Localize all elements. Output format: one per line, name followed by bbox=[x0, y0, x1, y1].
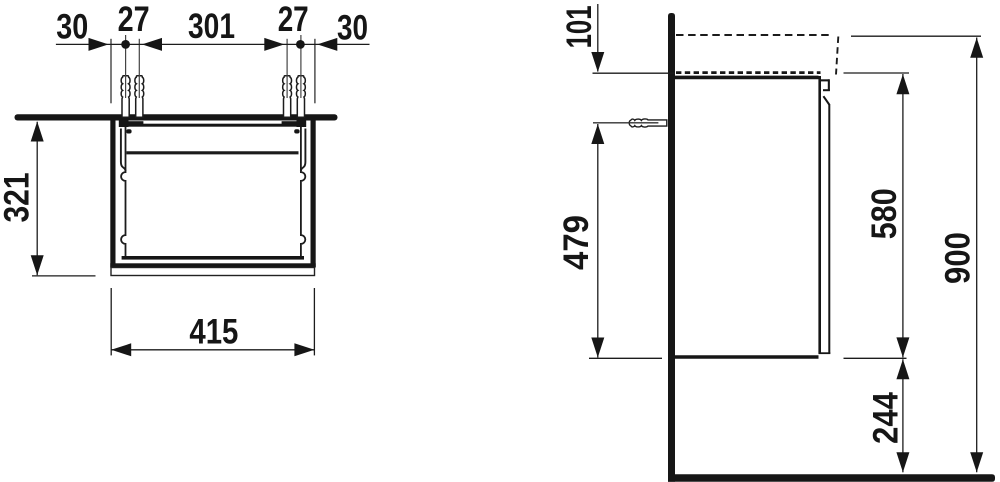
svg-text:27: 27 bbox=[118, 0, 150, 39]
svg-text:415: 415 bbox=[189, 313, 238, 352]
svg-text:900: 900 bbox=[939, 232, 978, 284]
svg-text:30: 30 bbox=[56, 7, 88, 46]
svg-text:301: 301 bbox=[188, 7, 235, 46]
svg-text:30: 30 bbox=[337, 8, 368, 47]
svg-text:27: 27 bbox=[278, 0, 309, 39]
svg-text:479: 479 bbox=[557, 215, 596, 270]
svg-text:244: 244 bbox=[867, 392, 906, 444]
svg-text:321: 321 bbox=[0, 173, 37, 223]
svg-text:580: 580 bbox=[865, 188, 904, 239]
svg-text:101: 101 bbox=[560, 5, 599, 48]
